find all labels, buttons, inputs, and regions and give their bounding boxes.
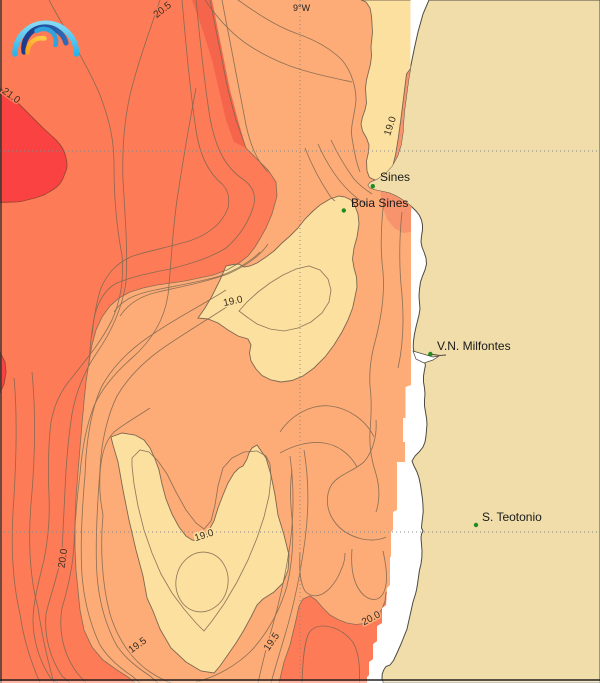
svg-text:Sines: Sines <box>380 170 410 184</box>
svg-text:Boia Sines: Boia Sines <box>351 196 408 210</box>
svg-text:9°W: 9°W <box>293 3 311 13</box>
svg-text:V.N. Milfontes: V.N. Milfontes <box>437 339 511 353</box>
svg-text:S. Teotonio: S. Teotonio <box>482 510 542 524</box>
